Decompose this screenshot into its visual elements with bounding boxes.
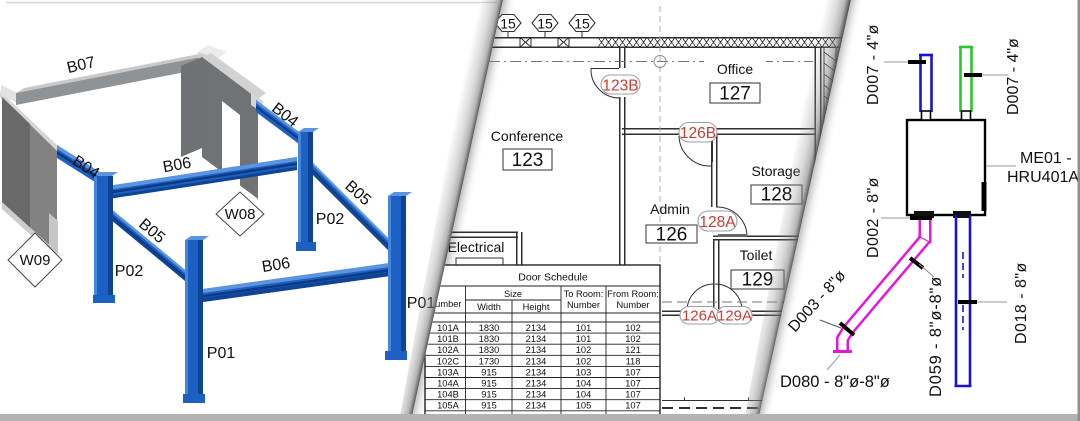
svg-text:2134: 2134 [526,367,547,377]
svg-text:104: 104 [576,390,592,400]
svg-text:2134: 2134 [526,390,547,400]
svg-text:D007 - 4"ø: D007 - 4"ø [865,24,882,105]
svg-text:W09: W09 [20,252,51,269]
svg-text:Toilet: Toilet [740,247,773,263]
svg-text:1830: 1830 [479,334,500,344]
svg-text:128A: 128A [699,214,736,231]
svg-text:1830: 1830 [479,345,500,355]
svg-text:129A: 129A [717,308,752,325]
svg-text:126: 126 [656,225,688,246]
svg-text:915: 915 [481,390,497,400]
svg-text:Width: Width [477,302,501,312]
svg-text:121: 121 [625,345,641,355]
svg-text:103: 103 [576,367,592,377]
svg-text:105: 105 [576,401,592,411]
svg-text:Door Schedule: Door Schedule [518,272,588,284]
svg-text:Number: Number [616,300,649,310]
svg-text:D007 - 4"ø: D007 - 4"ø [1005,38,1022,115]
svg-text:P02: P02 [115,263,144,280]
svg-text:126B: 126B [680,125,716,142]
svg-text:118: 118 [626,356,641,366]
svg-text:101B: 101B [437,334,459,344]
svg-text:D059 - 8"ø-8"ø: D059 - 8"ø-8"ø [927,276,945,397]
svg-text:HRU401A: HRU401A [1007,169,1079,186]
svg-text:102: 102 [625,334,641,344]
svg-text:D018 - 8"ø: D018 - 8"ø [1013,262,1030,344]
svg-text:2134: 2134 [526,356,547,366]
svg-text:105A: 105A [437,401,460,411]
svg-text:123B: 123B [602,78,638,95]
svg-text:101A: 101A [437,323,460,333]
svg-text:1730: 1730 [479,356,500,366]
svg-text:101: 101 [576,323,592,333]
svg-text:915: 915 [481,379,497,389]
svg-text:P01: P01 [207,345,236,362]
svg-text:2134: 2134 [526,401,547,411]
svg-text:To Room:: To Room: [564,289,604,299]
svg-text:127: 127 [719,84,751,105]
svg-text:129: 129 [742,270,774,291]
svg-text:2134: 2134 [526,334,547,344]
svg-text:15: 15 [500,16,516,32]
svg-text:W08: W08 [225,206,256,223]
svg-text:915: 915 [481,367,497,377]
svg-text:102A: 102A [437,345,460,355]
svg-text:From Room:: From Room: [607,289,659,299]
svg-text:1830: 1830 [479,323,500,333]
svg-text:123: 123 [512,150,544,171]
svg-text:2134: 2134 [526,379,547,389]
svg-text:102: 102 [576,345,592,355]
svg-text:Height: Height [523,302,550,312]
svg-text:107: 107 [625,367,641,377]
svg-text:103A: 103A [437,367,460,377]
svg-text:107: 107 [625,401,641,411]
svg-text:102: 102 [576,356,592,366]
svg-text:15: 15 [574,16,590,32]
svg-text:102C: 102C [437,356,460,366]
svg-text:Conference: Conference [491,128,564,144]
svg-text:104B: 104B [437,390,459,400]
svg-text:102: 102 [625,323,641,333]
svg-text:2134: 2134 [526,345,547,355]
svg-text:107: 107 [625,379,641,389]
svg-text:P02: P02 [316,211,345,228]
svg-text:Number: Number [567,300,600,310]
svg-text:Admin: Admin [650,201,690,217]
svg-text:101: 101 [576,334,592,344]
svg-text:Office: Office [717,61,754,77]
svg-text:ME01 -: ME01 - [1020,150,1072,167]
svg-text:915: 915 [481,401,497,411]
svg-text:107: 107 [625,390,641,400]
svg-text:15: 15 [537,16,553,32]
svg-text:D002 - 8"ø: D002 - 8"ø [865,177,882,258]
svg-text:104: 104 [576,379,592,389]
svg-text:126A: 126A [682,308,717,325]
svg-text:104A: 104A [437,379,460,389]
svg-text:D080 - 8"ø-8"ø: D080 - 8"ø-8"ø [780,373,890,391]
svg-text:Size: Size [504,289,522,299]
svg-text:Electrical: Electrical [448,239,505,255]
svg-text:2134: 2134 [526,323,547,333]
